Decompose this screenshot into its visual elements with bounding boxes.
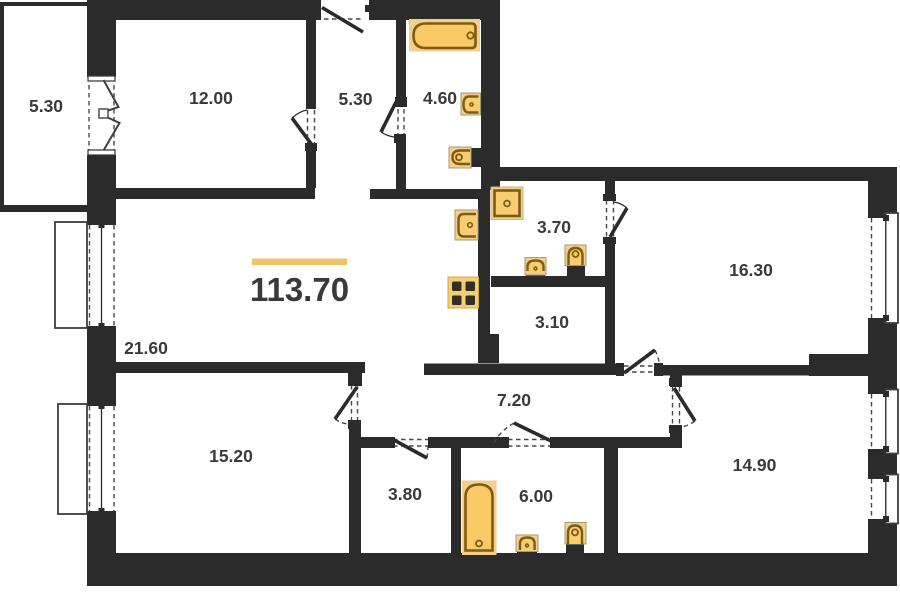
svg-text:3.80: 3.80 <box>388 484 422 504</box>
svg-text:3.70: 3.70 <box>537 217 571 237</box>
svg-text:5.30: 5.30 <box>338 89 372 109</box>
svg-text:12.00: 12.00 <box>189 88 233 108</box>
svg-text:7.20: 7.20 <box>497 390 531 410</box>
svg-text:21.60: 21.60 <box>124 338 168 358</box>
svg-text:5.30: 5.30 <box>29 96 63 116</box>
svg-text:6.00: 6.00 <box>519 486 553 506</box>
svg-text:3.10: 3.10 <box>535 312 569 332</box>
svg-text:15.20: 15.20 <box>209 446 253 466</box>
svg-text:16.30: 16.30 <box>729 260 773 280</box>
svg-text:113.70: 113.70 <box>250 271 349 308</box>
svg-text:14.90: 14.90 <box>733 455 777 475</box>
svg-text:4.60: 4.60 <box>423 88 457 108</box>
